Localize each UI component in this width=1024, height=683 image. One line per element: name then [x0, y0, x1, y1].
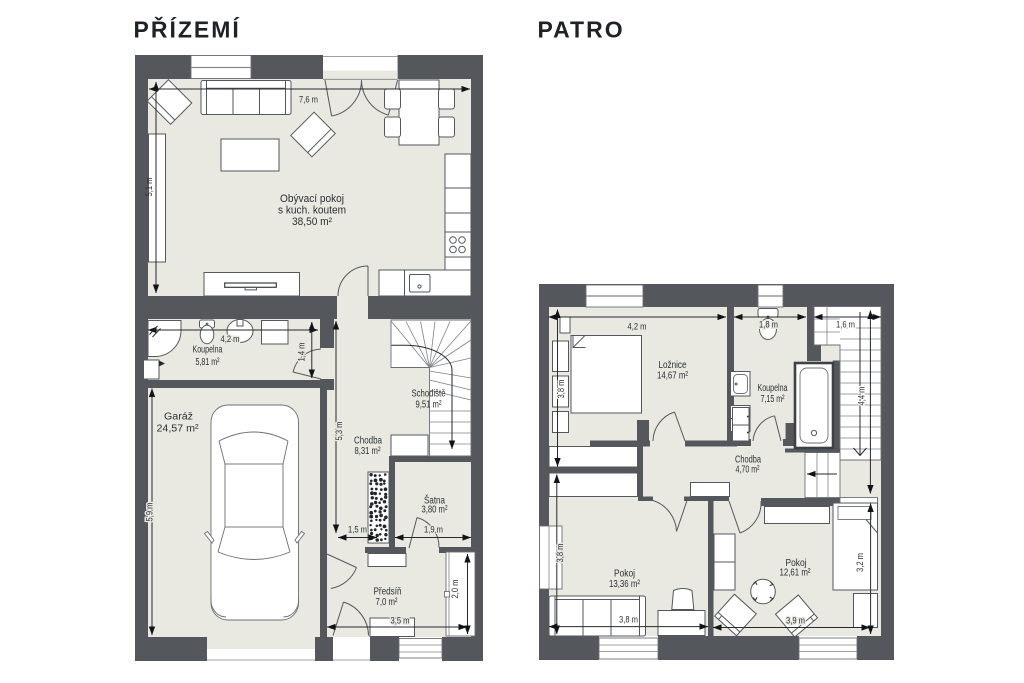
- svg-text:s kuch. koutem: s kuch. koutem: [278, 205, 346, 217]
- svg-text:1,6 m: 1,6 m: [836, 320, 855, 330]
- svg-text:9,51 m²: 9,51 m²: [416, 400, 443, 411]
- svg-text:3,80 m²: 3,80 m²: [422, 505, 449, 516]
- svg-text:4,4 m: 4,4 m: [857, 387, 867, 406]
- svg-text:PŘÍZEMÍ: PŘÍZEMÍ: [134, 16, 241, 43]
- svg-text:7,6 m: 7,6 m: [299, 95, 318, 105]
- svg-text:38,50 m²: 38,50 m²: [292, 216, 332, 228]
- svg-text:13,36 m²: 13,36 m²: [609, 579, 641, 590]
- svg-text:4,2 m: 4,2 m: [221, 334, 240, 344]
- svg-text:Koupelna: Koupelna: [193, 345, 223, 356]
- svg-text:4,70 m²: 4,70 m²: [736, 465, 760, 476]
- svg-text:Předsíň: Předsíň: [374, 587, 402, 598]
- svg-text:3,2 m: 3,2 m: [855, 553, 865, 572]
- svg-text:7,0 m²: 7,0 m²: [376, 597, 399, 608]
- svg-text:Pokoj: Pokoj: [614, 569, 635, 580]
- svg-text:PATRO: PATRO: [538, 17, 625, 43]
- svg-text:3,8 m: 3,8 m: [556, 380, 566, 399]
- svg-text:Schodiště: Schodiště: [412, 389, 446, 400]
- svg-text:7,15 m²: 7,15 m²: [761, 394, 785, 405]
- svg-text:Koupelna: Koupelna: [758, 383, 788, 394]
- svg-text:Obývací pokoj: Obývací pokoj: [280, 193, 344, 205]
- svg-text:3,8 m: 3,8 m: [555, 544, 565, 563]
- svg-text:Garáž: Garáž: [164, 412, 193, 423]
- svg-text:3,8 m: 3,8 m: [619, 615, 638, 625]
- svg-text:24,57 m²: 24,57 m²: [157, 424, 200, 435]
- svg-text:Ložnice: Ložnice: [659, 360, 687, 371]
- svg-text:2,0 m: 2,0 m: [450, 580, 460, 599]
- svg-text:5,3 m: 5,3 m: [334, 422, 344, 441]
- svg-text:3,9 m: 3,9 m: [786, 616, 805, 626]
- svg-text:1,5 m: 1,5 m: [348, 525, 367, 535]
- svg-text:1,4 m: 1,4 m: [297, 343, 307, 362]
- svg-text:12,61 m²: 12,61 m²: [780, 568, 812, 579]
- svg-text:3,5 m: 3,5 m: [391, 616, 410, 626]
- svg-text:5,81 m²: 5,81 m²: [196, 357, 220, 368]
- svg-text:1,9 m: 1,9 m: [424, 525, 443, 535]
- svg-text:4,2 m: 4,2 m: [628, 322, 647, 332]
- svg-text:5,9 m: 5,9 m: [145, 503, 155, 522]
- svg-text:5,1 m: 5,1 m: [144, 178, 154, 197]
- svg-text:14,67 m²: 14,67 m²: [657, 371, 689, 382]
- svg-text:1,8 m: 1,8 m: [759, 320, 778, 330]
- svg-text:8,31 m²: 8,31 m²: [355, 446, 382, 457]
